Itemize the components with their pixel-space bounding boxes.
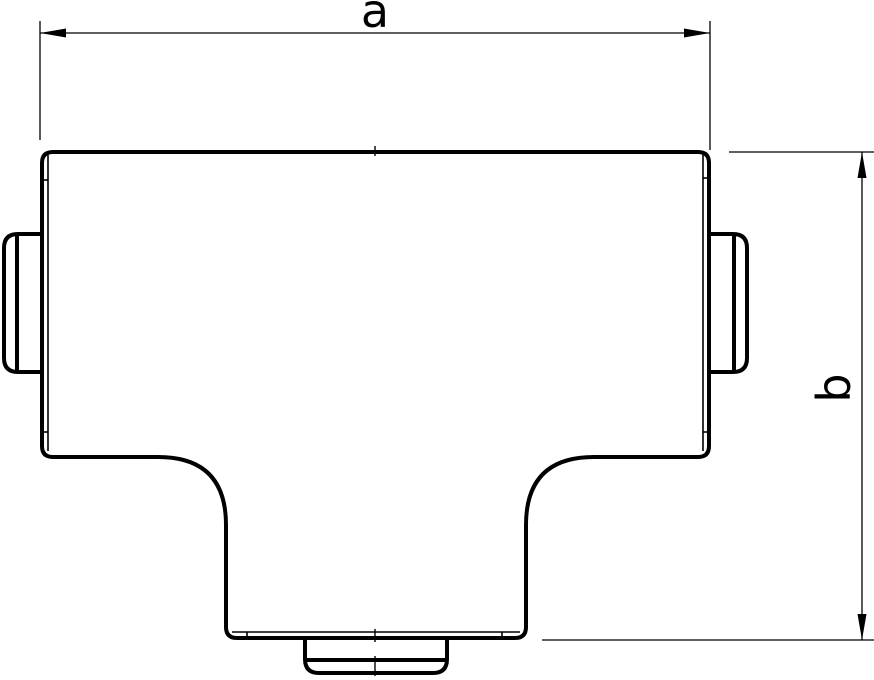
tee-piece-drawing: a b bbox=[0, 0, 874, 680]
dimension-b-arrowhead-top bbox=[858, 152, 867, 178]
dimension-b-label: b bbox=[807, 373, 861, 402]
bottom-tab-outline bbox=[305, 638, 447, 673]
left-coupling-tab bbox=[4, 234, 42, 372]
bottom-coupling-tab bbox=[305, 638, 447, 673]
right-coupling-tab bbox=[709, 234, 747, 372]
t-piece-body bbox=[42, 146, 709, 676]
dimension-a-label: a bbox=[361, 0, 389, 38]
right-tab-outline bbox=[709, 234, 747, 372]
dimension-a-arrowhead-left bbox=[40, 29, 66, 38]
left-tab-outline bbox=[4, 234, 42, 372]
t-piece-body-outline bbox=[42, 152, 709, 638]
dimension-a: a bbox=[40, 0, 710, 150]
dimension-a-arrowhead-right bbox=[684, 29, 710, 38]
dimension-b-arrowhead-bottom bbox=[858, 614, 867, 640]
technical-drawing-canvas: a b bbox=[0, 0, 874, 680]
